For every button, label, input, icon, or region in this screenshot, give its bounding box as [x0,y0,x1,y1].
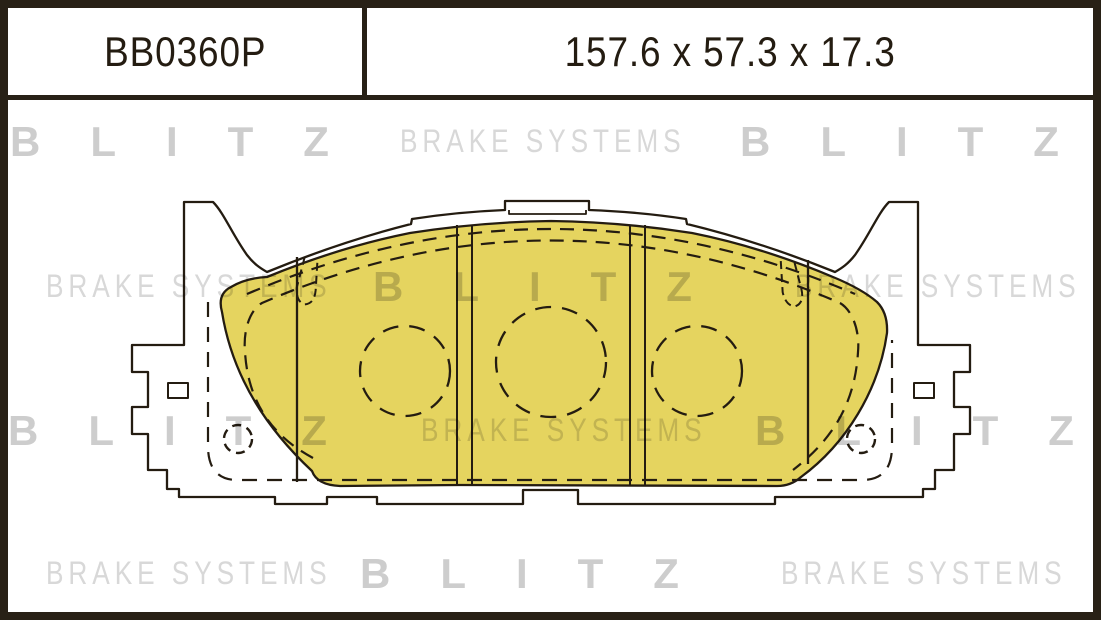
catalog-card: BB0360P 157.6 x 57.3 x 17.3 [0,0,1101,620]
part-number-cell: BB0360P [8,8,362,95]
dimensions-cell: 157.6 x 57.3 x 17.3 [367,8,1093,95]
friction-material [221,221,887,486]
part-number: BB0360P [104,28,266,76]
pad-dimensions: 157.6 x 57.3 x 17.3 [564,28,895,76]
header: BB0360P 157.6 x 57.3 x 17.3 [8,8,1093,100]
